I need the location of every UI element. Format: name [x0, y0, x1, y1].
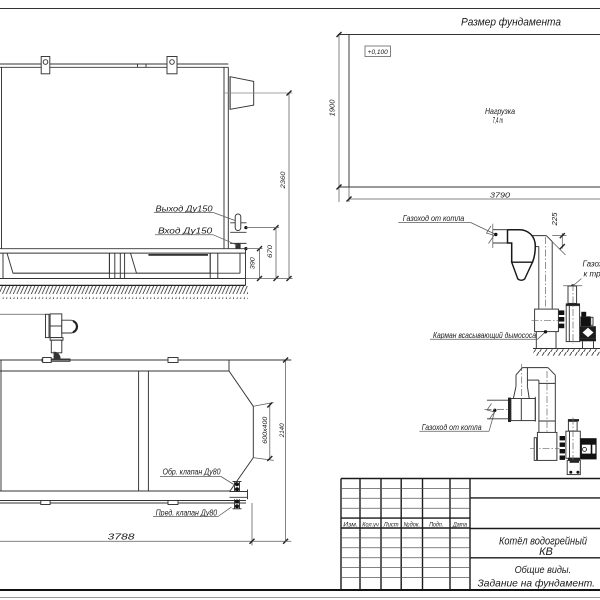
svg-text:2360: 2360	[280, 171, 287, 190]
svg-text:+0,100: +0,100	[368, 49, 388, 56]
svg-text:7,4 т: 7,4 т	[493, 116, 504, 125]
svg-text:Изм.: Изм.	[343, 521, 358, 528]
svg-text:Газоход: Газоход	[583, 259, 600, 268]
svg-text:к трубе: к трубе	[584, 270, 600, 279]
svg-text:Выход Ду150: Выход Ду150	[156, 204, 214, 213]
svg-text:Карман всасывающий дымососа: Карман всасывающий дымососа	[433, 331, 536, 340]
svg-text:600х400: 600х400	[262, 416, 269, 443]
svg-text:Пред. клапан Ду80: Пред. клапан Ду80	[156, 508, 218, 517]
svg-text:390: 390	[250, 257, 257, 269]
svg-text:2140: 2140	[279, 423, 286, 438]
svg-text:Нагрузка: Нагрузка	[485, 107, 515, 116]
svg-text:Вход Ду150: Вход Ду150	[158, 227, 213, 236]
svg-text:3790: 3790	[490, 190, 511, 199]
svg-text:Лист: Лист	[383, 521, 399, 528]
svg-text:1900: 1900	[329, 99, 336, 116]
svg-text:КВ: КВ	[539, 546, 553, 558]
svg-text:3788: 3788	[108, 533, 136, 542]
svg-text:Газоход от котла: Газоход от котла	[403, 214, 465, 223]
svg-text:Дата: Дата	[452, 521, 467, 528]
svg-text:№док.: №док.	[404, 520, 421, 528]
svg-text:670: 670	[267, 245, 274, 258]
svg-text:Газоход от котла: Газоход от котла	[422, 423, 482, 432]
svg-text:Общие виды.: Общие виды.	[515, 564, 572, 576]
svg-text:Обр. клапан Ду80: Обр. клапан Ду80	[163, 468, 221, 477]
svg-text:Подп.: Подп.	[429, 520, 443, 528]
svg-text:Кол.уч: Кол.уч	[362, 521, 379, 528]
svg-text:225: 225	[552, 212, 559, 226]
svg-text:Размер фундамента: Размер фундамента	[461, 17, 561, 29]
svg-text:Задание на фундамент.: Задание на фундамент.	[478, 577, 596, 589]
